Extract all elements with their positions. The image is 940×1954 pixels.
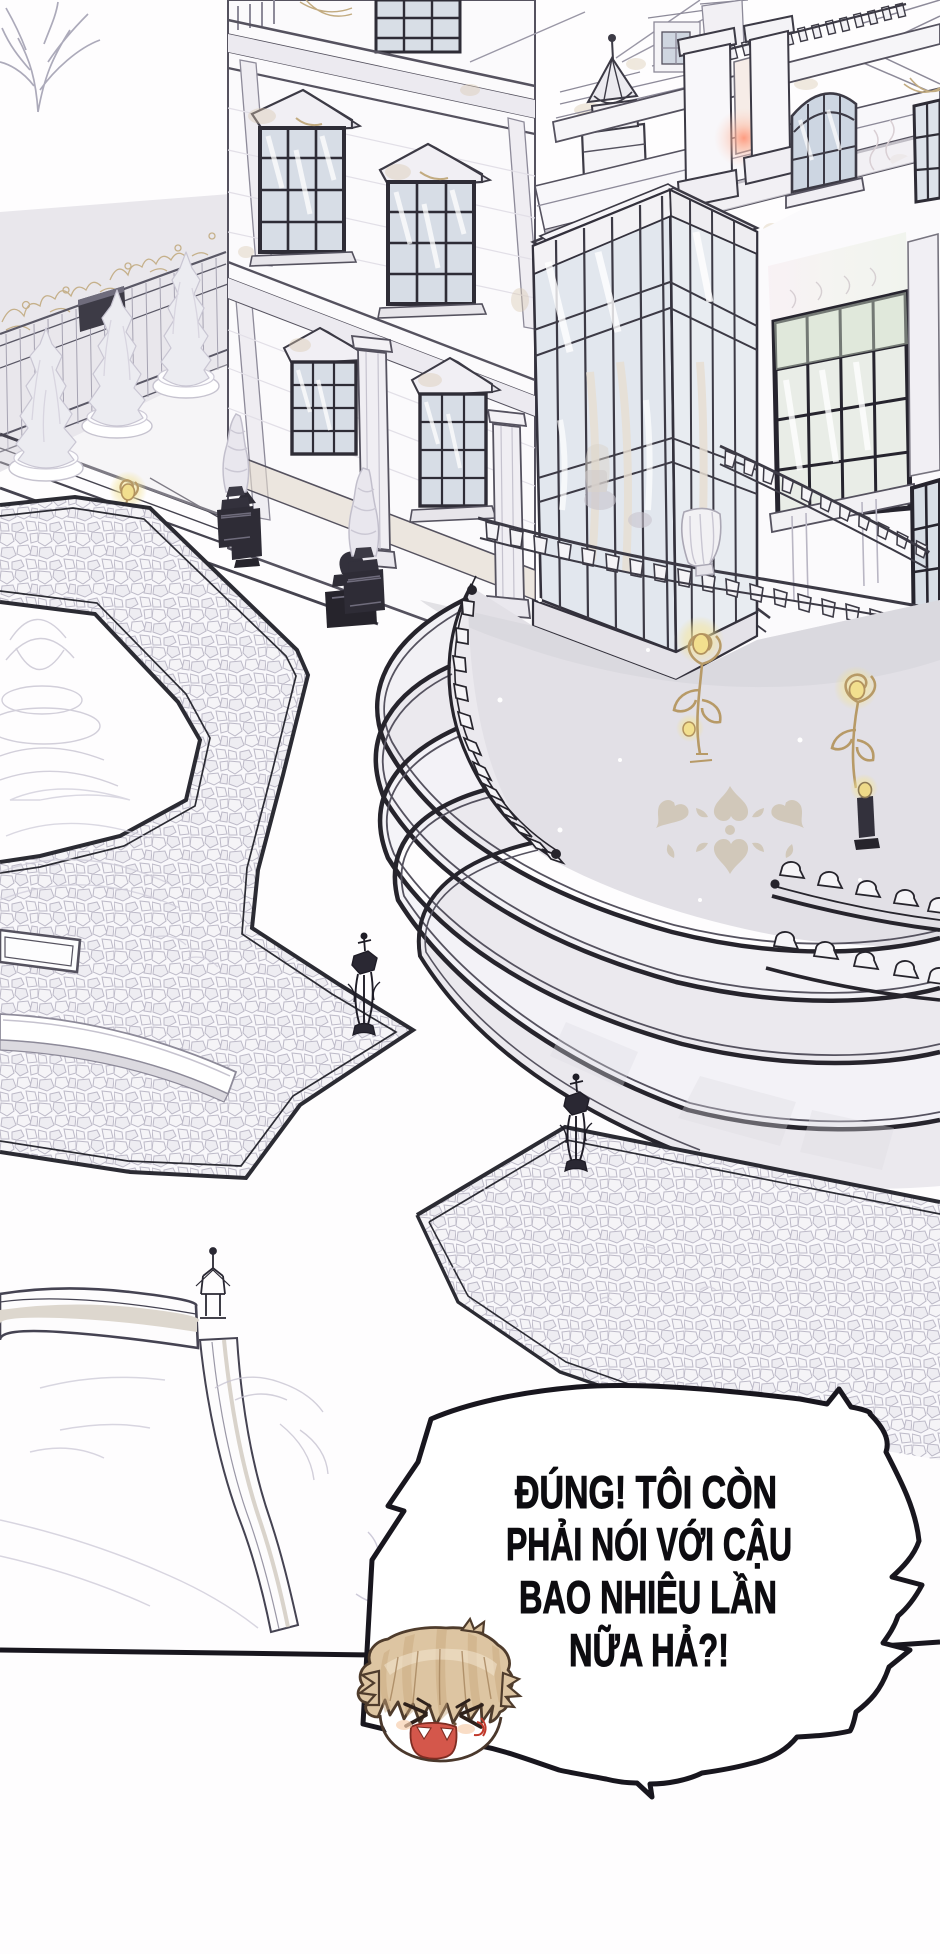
svg-text:BAO NHIÊU LẦN: BAO NHIÊU LẦN xyxy=(519,1571,777,1623)
svg-text:NỮA HẢ?!: NỮA HẢ?! xyxy=(569,1624,729,1676)
svg-text:ĐÚNG! TÔI CÒN: ĐÚNG! TÔI CÒN xyxy=(515,1466,777,1518)
svg-text:PHẢI NÓI VỚI CẬU: PHẢI NÓI VỚI CẬU xyxy=(506,1518,792,1570)
